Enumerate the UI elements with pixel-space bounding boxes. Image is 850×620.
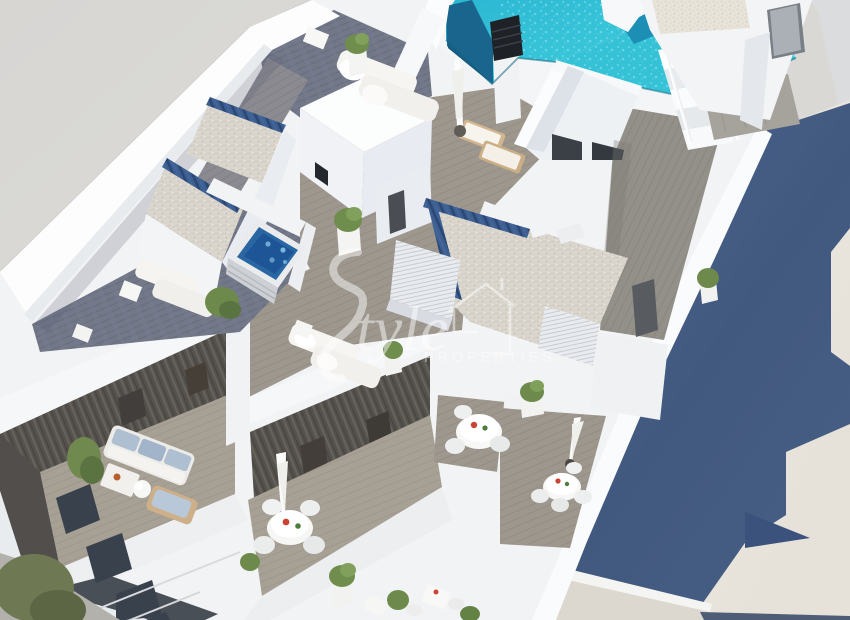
- svg-text:PROPERTIES: PROPERTIES: [424, 349, 555, 366]
